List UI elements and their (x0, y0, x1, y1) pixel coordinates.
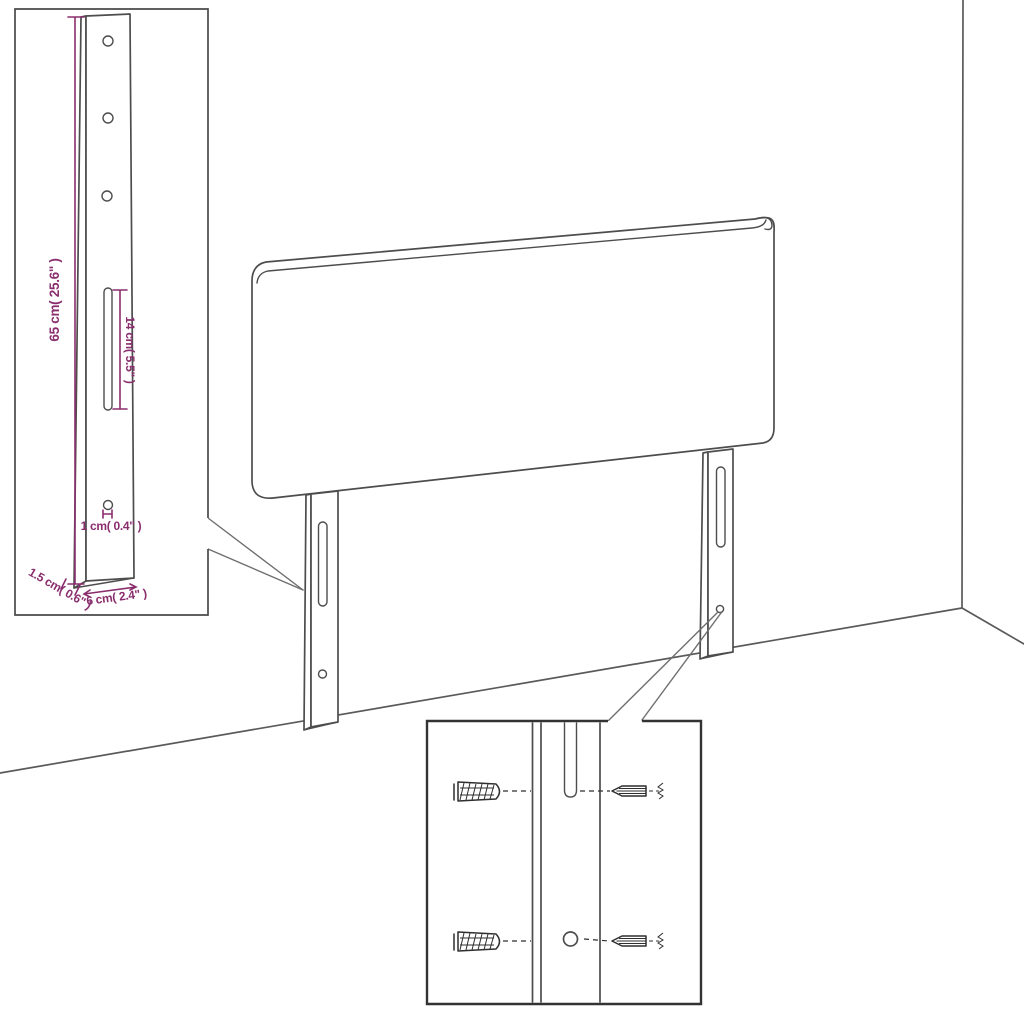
left-leg-front-face (311, 491, 338, 727)
callout-line (642, 613, 721, 720)
floor-wall-line-right (962, 608, 1024, 644)
wall-corner-line (962, 0, 963, 608)
headboard-outline (252, 218, 774, 499)
dimension-label: 65 cm( 25.6" ) (47, 258, 62, 341)
diagram-canvas: 65 cm( 25.6" ) 14 cm( 5.5" ) 1 cm( 0.4" … (0, 0, 1024, 1024)
hardware-detail-inset (427, 721, 701, 1004)
callout-wedge-left (208, 518, 303, 590)
inset-leg-front-face (86, 14, 134, 581)
left-leg-side-face (304, 494, 311, 730)
callout-line (208, 549, 303, 590)
assembly-diagram: 65 cm( 25.6" ) 14 cm( 5.5" ) 1 cm( 0.4" … (0, 0, 1024, 1024)
leg-detail-inset: 65 cm( 25.6" ) 14 cm( 5.5" ) 1 cm( 0.4" … (15, 9, 208, 615)
dimension-label: 1 cm( 0.4" ) (81, 519, 142, 533)
right-mounting-leg (700, 449, 733, 659)
headboard-panel (252, 217, 774, 498)
left-mounting-leg (304, 491, 338, 730)
dimension-label: 14 cm( 5.5" ) (123, 316, 137, 383)
callout-line (208, 518, 303, 590)
